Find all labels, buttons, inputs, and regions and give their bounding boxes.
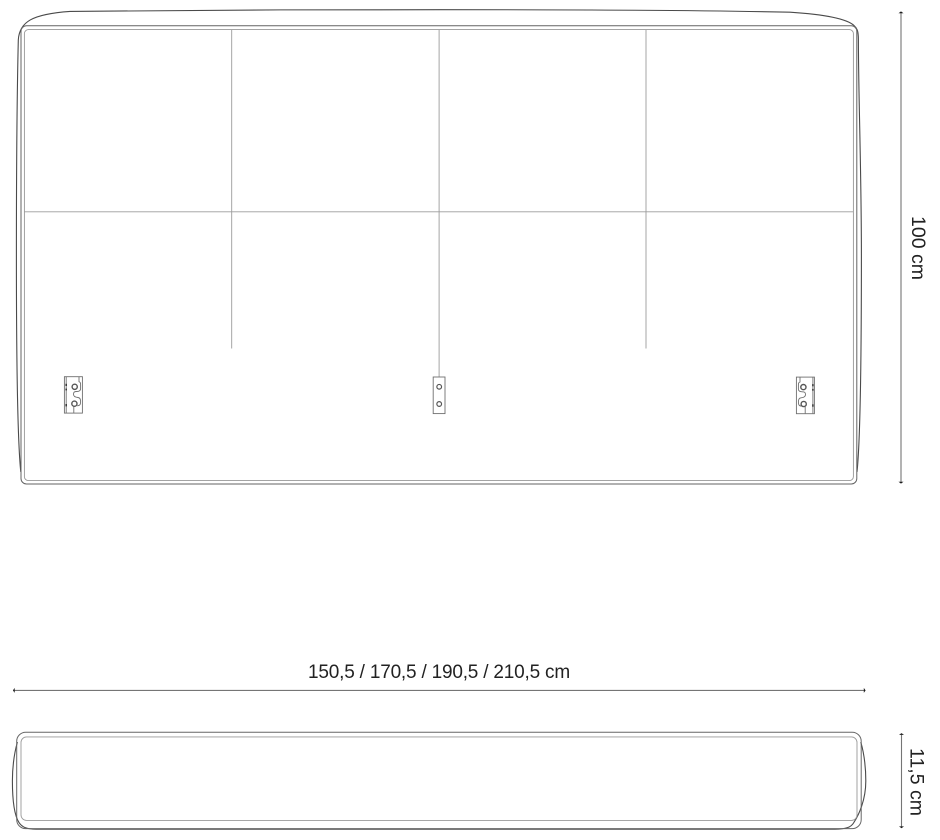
svg-text:100 cm: 100 cm — [907, 216, 929, 280]
svg-text:11,5 cm: 11,5 cm — [906, 748, 928, 816]
svg-text:150,5 / 170,5 / 190,5 / 210,5: 150,5 / 170,5 / 190,5 / 210,5 cm — [308, 662, 570, 683]
